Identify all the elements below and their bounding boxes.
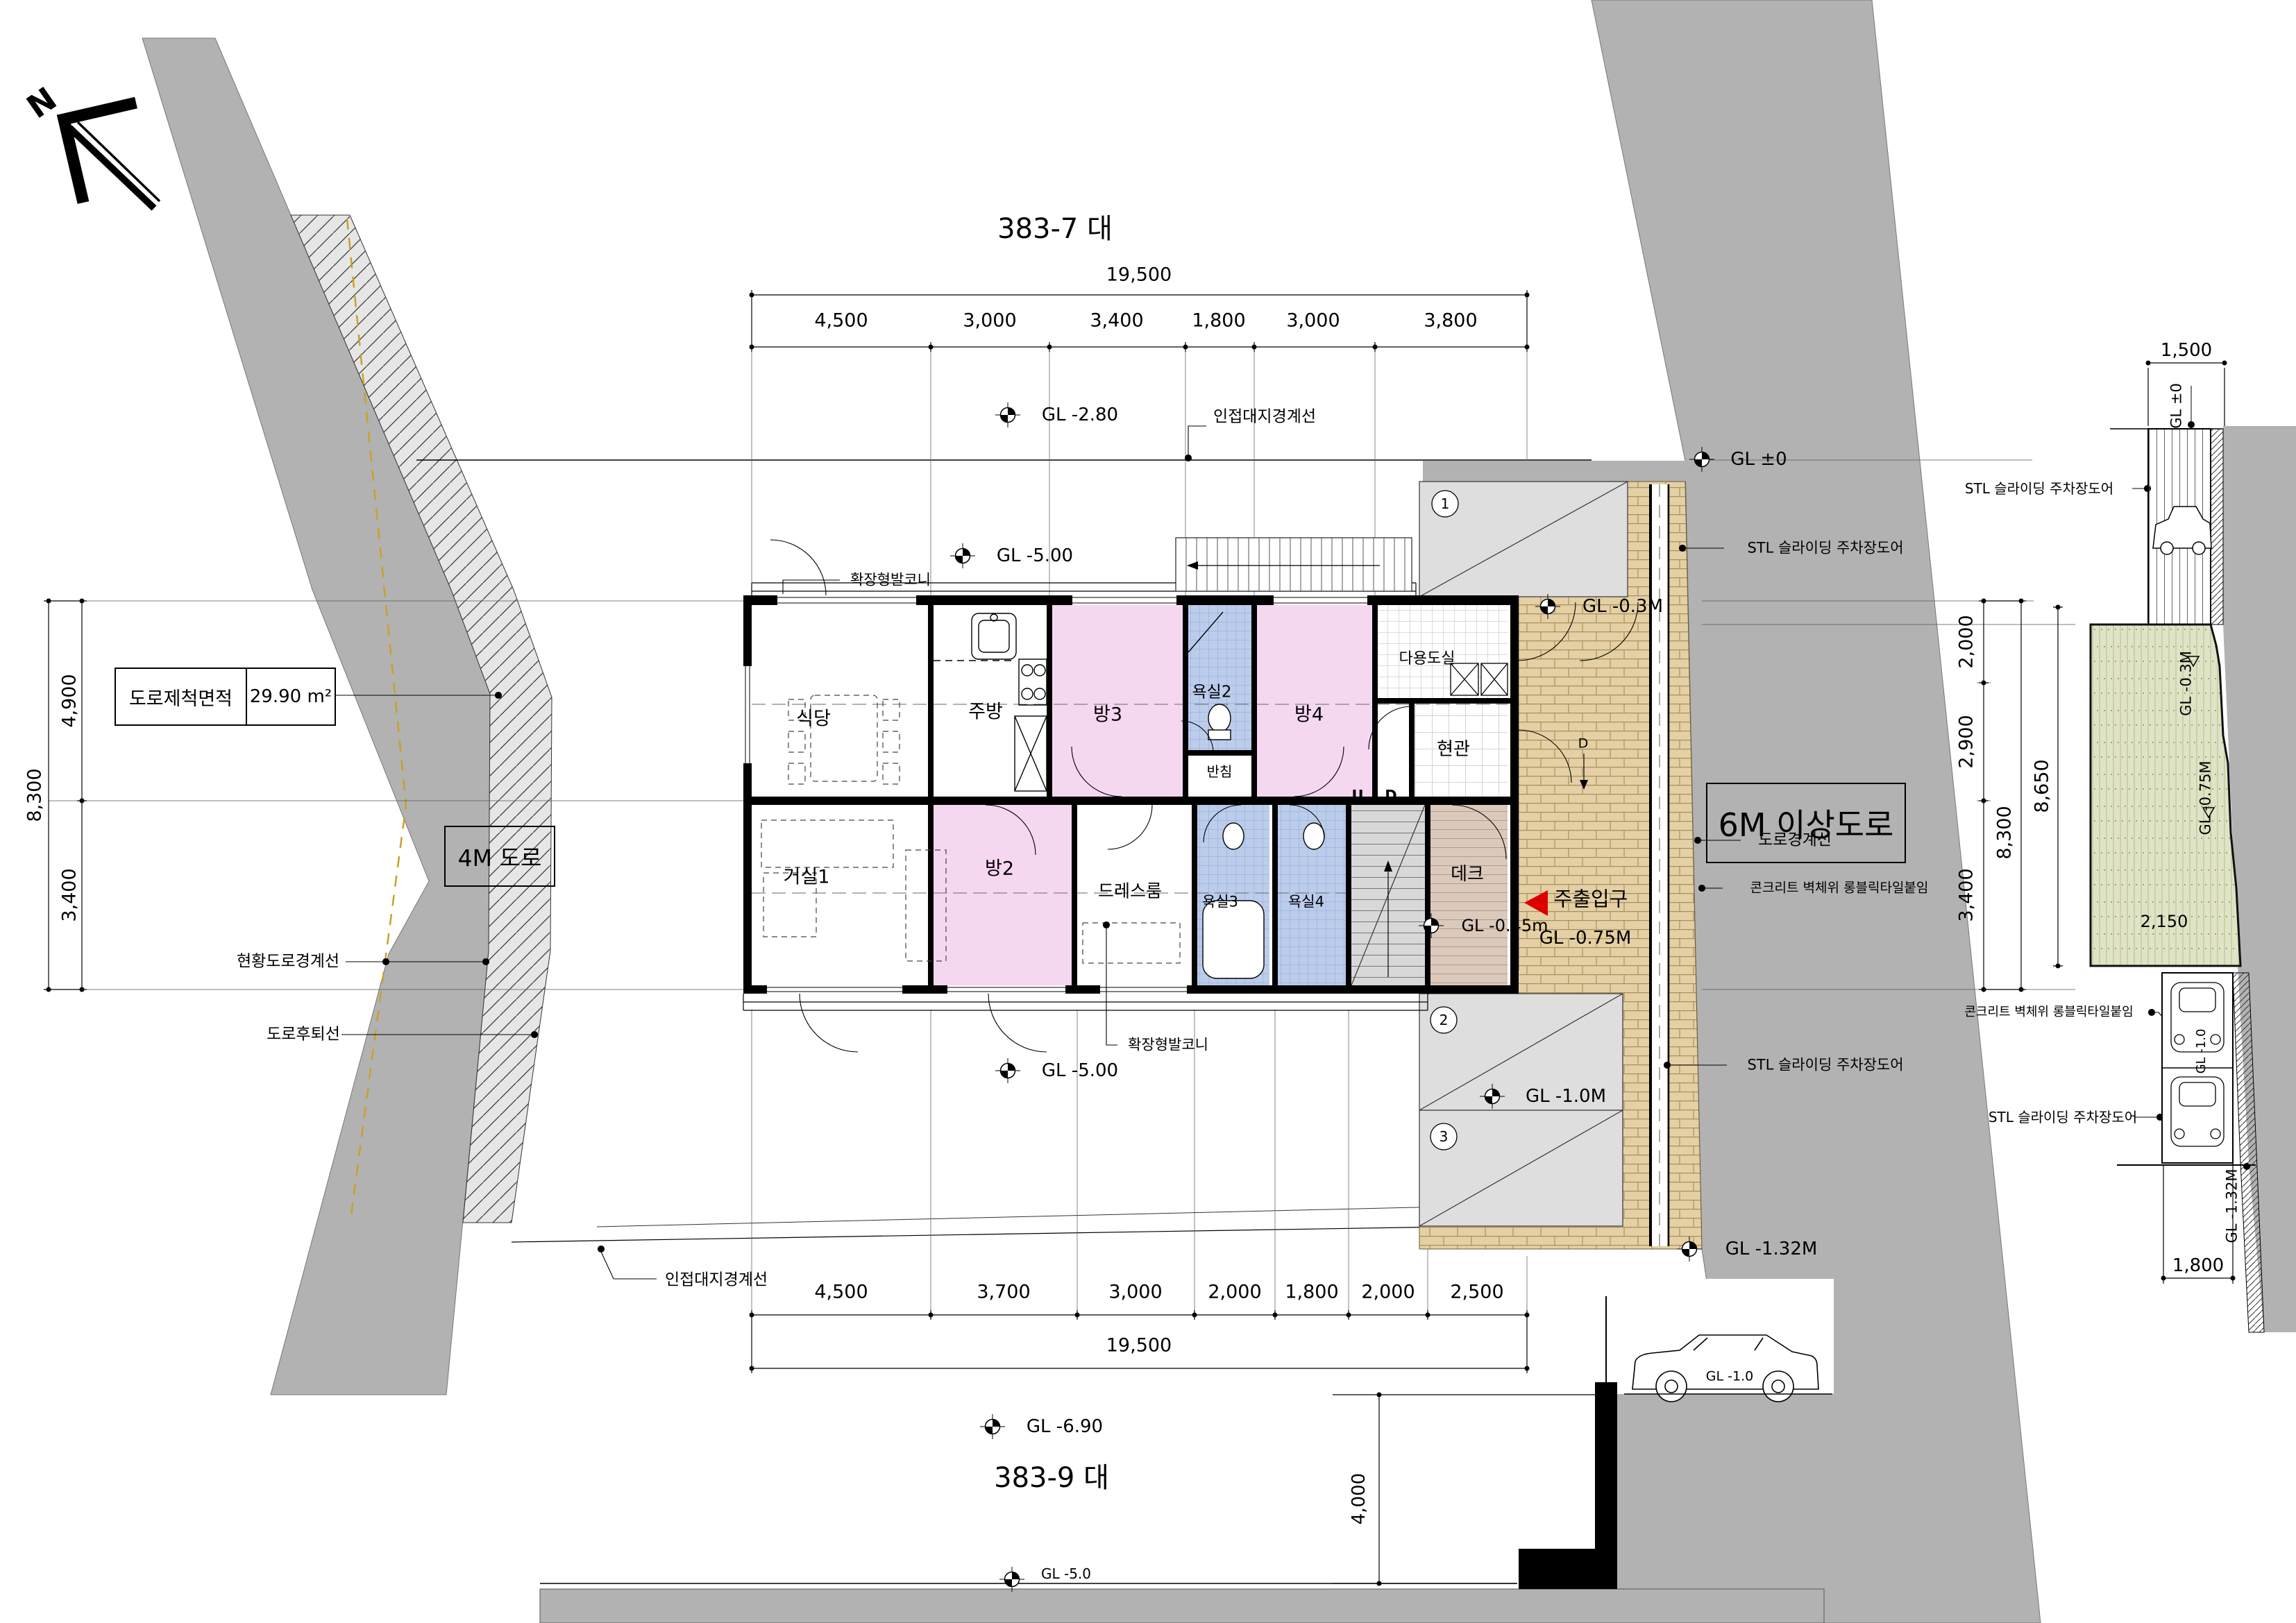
room4-fill [1257,605,1372,797]
dim-bot-3: 3,000 [1108,1283,1162,1302]
gl-pm0-icon [1689,447,1714,472]
dim-left-2: 3,400 [60,868,79,921]
dim-section-height: 8,650 [2033,759,2052,813]
label-stl-door-1: STL 슬라이딩 주차장도어 [1747,541,1903,556]
parking-num-3: 3 [1440,1130,1449,1144]
gl-132m-icon [1677,1237,1702,1261]
top-stair-strip [1176,538,1412,591]
parking-num-2: 2 [1440,1013,1449,1027]
gl-50-ground-icon [999,1567,1024,1592]
balcony-bottom [743,994,1428,1010]
room-living1: 거실1 [784,868,830,887]
letter-down-drive: D [1578,738,1589,751]
corner-strip [1423,461,1700,482]
gl-690-label: GL -6.90 [1027,1418,1103,1436]
dim-right-1: 2,000 [1957,615,1976,668]
deck-fill [1430,805,1508,985]
dim-section-1500: 1,500 [2161,341,2212,359]
road-exclusion-value: 29.90 m² [247,669,335,724]
room-bath3: 욕실3 [1202,895,1238,910]
letter-down: D [1385,789,1396,804]
gl-10m-icon [1480,1084,1505,1109]
gl-section-10: GL -1.0 [2195,1029,2208,1074]
label-stl-door-4: STL 슬라이딩 주차장도어 [1989,1110,2137,1124]
dim-top-1: 4,500 [814,312,868,330]
label-ext-balcony-top: 확장형발코니 [850,573,931,588]
gl-500-lower-icon [995,1058,1020,1083]
gl-pm0-label: GL ±0 [1730,450,1787,468]
section-drawing [2091,386,2296,1332]
parking-num-1: 1 [1441,497,1450,511]
label-adjacent-boundary-top: 인접대지경계선 [1213,409,1316,425]
gl-500-upper-label: GL -5.00 [997,547,1073,565]
road-exclusion-label: 도로제척면적 [116,669,247,724]
room-kitchen: 주방 [968,703,1003,722]
label-stl-door-2: STL 슬라이딩 주차장도어 [1965,482,2113,495]
label-main-entrance: 주출입구 [1554,890,1628,910]
dim-right-total: 8,300 [1995,806,2014,859]
room-banchim: 반침 [1207,765,1233,779]
gl-500-lower-label: GL -5.00 [1042,1062,1118,1080]
site-floor-plan: 도로제척면적 29.90 m² 4M 도로 6M 이상도로 383-7 대383… [0,0,2296,1623]
road-exclusion-table: 도로제척면적 29.90 m² [115,668,336,726]
gl-section-132: GL -1.32M [2225,1169,2240,1243]
letter-up: U [1351,789,1363,804]
room3-fill [1052,605,1183,797]
dim-4000: 4,000 [1350,1473,1368,1524]
label-concrete-tile-1: 콘크리트 벽체위 롱블릭타일붙임 [1750,882,1929,895]
gl-50-ground-label: GL -5.0 [1041,1567,1091,1581]
dim-top-4: 1,800 [1192,312,1245,330]
room-4: 방4 [1294,706,1324,724]
gl-132m-label: GL -1.32M [1725,1240,1818,1258]
garage-2-3 [1419,994,1623,1226]
dim-right-3: 3,400 [1957,868,1976,921]
title-bottom: 383-9 대 [994,1464,1109,1492]
gl-03m-icon [1535,594,1560,619]
plan-drawing [0,0,2296,1623]
north-arrow-icon [64,103,160,208]
label-road-setback-line: 도로후퇴선 [267,1027,340,1043]
title-top: 383-7 대 [997,215,1113,243]
gl-045m-icon [1419,913,1444,938]
room-entrance-hall: 현관 [1437,740,1470,758]
room-bath2: 욕실2 [1192,685,1232,701]
gl-section-075: GL -0.75M [2199,760,2213,835]
label-existing-road-boundary: 현황도로경계선 [237,954,339,970]
dim-top-2: 3,000 [963,312,1016,330]
label-concrete-tile-2: 콘크리트 벽체위 롱블릭타일붙임 [1964,1006,2133,1019]
room-bath4: 욕실4 [1288,895,1324,910]
gl-280-label: GL -2.80 [1042,406,1118,424]
dim-top-3: 3,400 [1090,312,1143,330]
gl-car-road: GL -1.0 [1706,1370,1753,1384]
dim-top-6: 3,800 [1424,312,1477,330]
room2-fill [934,805,1072,985]
label-stl-door-3: STL 슬라이딩 주차장도어 [1747,1058,1903,1073]
label-ext-balcony-bottom: 확장형발코니 [1128,1038,1208,1053]
dim-left-total: 8,300 [26,768,44,822]
garage-1 [1419,482,1628,597]
room-2: 방2 [985,860,1014,878]
dim-bot-4: 2,000 [1208,1283,1261,1302]
label-road-boundary: 도로경계선 [1758,833,1832,849]
room-3: 방3 [1093,706,1122,724]
dim-section-2150: 2,150 [2141,913,2188,930]
bottom-elevation [540,1279,1834,1623]
label-adjacent-boundary-bottom: 인접대지경계선 [665,1273,768,1289]
road-6m-box: 6M 이상도로 [1706,783,1906,863]
gl-280-icon [995,402,1020,427]
room-utility: 다용도실 [1399,652,1455,667]
dim-bot-1: 4,500 [814,1283,868,1302]
gl-500-upper-icon [950,543,975,568]
dim-bot-5: 1,800 [1285,1283,1338,1302]
dim-bot-2: 3,700 [977,1283,1030,1302]
gl-section-03: GL -0.3M [2179,651,2194,716]
dim-top-total: 19,500 [1106,266,1172,284]
dim-section-1800: 1,800 [2172,1257,2224,1275]
room-dressroom: 드레스룸 [1098,883,1162,900]
gl-690-icon [980,1414,1005,1439]
road-4m-box: 4M 도로 [444,826,555,887]
dim-bot-7: 2,500 [1450,1283,1503,1302]
dim-bot-total: 19,500 [1106,1336,1172,1355]
gl-10m-label: GL -1.0M [1526,1087,1606,1105]
dim-right-2: 2,900 [1957,715,1976,768]
dim-left-1: 4,900 [60,674,79,727]
room-dining: 식당 [796,710,831,729]
gl-03m-label: GL -0.3M [1582,597,1663,615]
room-deck: 데크 [1451,865,1484,883]
road-4m-label: 4M 도로 [458,840,542,873]
gl-section-pm0: GL ±0 [2170,383,2184,429]
dim-top-5: 3,000 [1286,312,1340,330]
gl-045m-label: GL -0.45m [1461,917,1548,934]
label-main-entrance-gl: GL -0.75M [1539,929,1632,947]
dim-bot-6: 2,000 [1361,1283,1415,1302]
